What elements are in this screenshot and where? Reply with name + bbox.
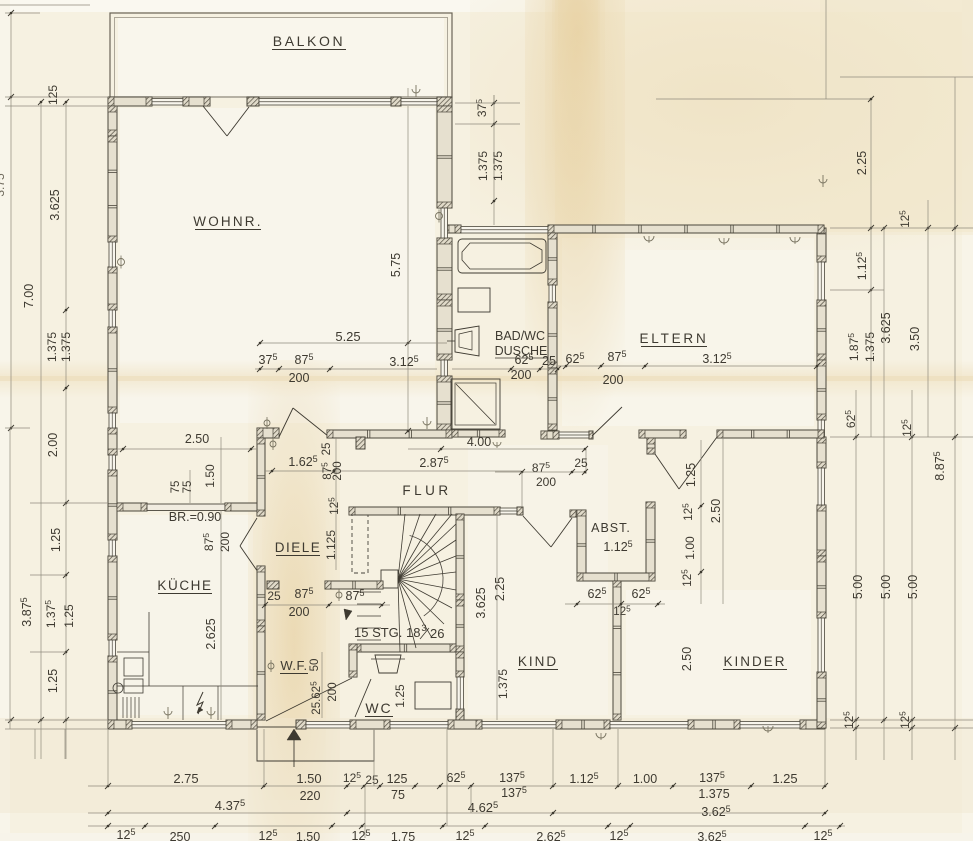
svg-text:4.00: 4.00 <box>467 435 491 449</box>
svg-text:25.625: 25.625 <box>309 681 323 715</box>
svg-text:50: 50 <box>309 659 321 672</box>
svg-text:25: 25 <box>574 456 588 470</box>
svg-text:5.25: 5.25 <box>335 329 360 344</box>
svg-text:200: 200 <box>536 475 556 489</box>
svg-text:DIELE: DIELE <box>275 540 322 555</box>
svg-text:200: 200 <box>603 373 624 387</box>
svg-text:200: 200 <box>218 532 232 552</box>
svg-text:1.375: 1.375 <box>59 332 73 362</box>
svg-text:2.25: 2.25 <box>855 151 869 175</box>
svg-text:2.00: 2.00 <box>46 433 60 457</box>
svg-text:1.50: 1.50 <box>296 830 320 841</box>
svg-text:25: 25 <box>365 773 379 787</box>
svg-text:1.00: 1.00 <box>633 772 657 786</box>
svg-text:3.625: 3.625 <box>879 312 893 343</box>
svg-text:1.25: 1.25 <box>49 528 63 552</box>
svg-text:25: 25 <box>542 354 556 368</box>
svg-text:BAD/WC: BAD/WC <box>495 329 545 343</box>
svg-text:75: 75 <box>182 481 194 494</box>
svg-text:26: 26 <box>430 626 444 641</box>
svg-text:ABST.: ABST. <box>591 521 631 535</box>
svg-text:1.50: 1.50 <box>203 464 217 488</box>
svg-text:200: 200 <box>332 461 344 480</box>
svg-text:1.375: 1.375 <box>496 669 510 699</box>
svg-text:BALKON: BALKON <box>273 33 345 49</box>
svg-text:200: 200 <box>289 605 310 619</box>
svg-text:1.25: 1.25 <box>46 669 60 693</box>
svg-text:1.375: 1.375 <box>491 151 505 181</box>
svg-text:1.125: 1.125 <box>324 530 338 560</box>
svg-text:2.50: 2.50 <box>709 499 723 523</box>
svg-text:7.00: 7.00 <box>22 284 36 308</box>
svg-text:2.25: 2.25 <box>493 577 507 601</box>
svg-text:250: 250 <box>170 830 191 841</box>
svg-text:KIND: KIND <box>518 654 558 669</box>
svg-text:5.00: 5.00 <box>879 575 893 599</box>
svg-text:2.50: 2.50 <box>185 432 209 446</box>
svg-text:BR.=0.90: BR.=0.90 <box>169 510 222 524</box>
svg-text:2.75: 2.75 <box>173 771 198 786</box>
svg-text:5.00: 5.00 <box>906 575 920 599</box>
svg-text:1.25: 1.25 <box>62 604 76 628</box>
svg-text:220: 220 <box>300 789 321 803</box>
svg-text:1.375: 1.375 <box>476 151 490 181</box>
svg-text:125: 125 <box>387 772 408 786</box>
svg-text:200: 200 <box>289 371 310 385</box>
svg-text:2.50: 2.50 <box>680 647 694 671</box>
svg-text:1.50: 1.50 <box>296 771 321 786</box>
svg-text:125: 125 <box>46 85 60 105</box>
svg-text:1.375: 1.375 <box>863 332 877 362</box>
svg-text:200: 200 <box>511 368 532 382</box>
svg-text:WOHNR.: WOHNR. <box>193 214 262 229</box>
svg-text:WC: WC <box>365 700 392 716</box>
svg-text:1.25: 1.25 <box>772 771 797 786</box>
svg-text:3.75: 3.75 <box>0 173 7 197</box>
svg-text:25: 25 <box>321 443 333 456</box>
svg-text:3.625: 3.625 <box>48 189 62 220</box>
svg-text:1.75: 1.75 <box>391 830 415 841</box>
svg-text:2.625: 2.625 <box>204 618 218 649</box>
svg-text:5.75: 5.75 <box>389 253 403 277</box>
svg-text:200: 200 <box>327 682 339 701</box>
svg-text:75: 75 <box>391 788 405 802</box>
svg-text:KÜCHE: KÜCHE <box>157 578 212 593</box>
svg-text:W.F.: W.F. <box>280 658 307 673</box>
svg-text:1.25: 1.25 <box>393 684 407 708</box>
svg-text:1.375: 1.375 <box>698 787 729 801</box>
svg-text:1.00: 1.00 <box>683 536 697 560</box>
svg-text:ELTERN: ELTERN <box>639 331 708 346</box>
svg-text:KINDER: KINDER <box>723 654 786 669</box>
svg-text:3.625: 3.625 <box>474 587 488 618</box>
svg-text:75: 75 <box>170 481 182 494</box>
svg-text:5.00: 5.00 <box>851 575 865 599</box>
svg-text:1.25: 1.25 <box>684 463 698 487</box>
svg-text:25: 25 <box>267 589 281 603</box>
svg-text:FLUR: FLUR <box>402 483 451 498</box>
svg-text:15 STG. 18: 15 STG. 18 <box>354 625 420 640</box>
svg-text:3.50: 3.50 <box>908 327 922 351</box>
svg-text:1.375: 1.375 <box>45 332 59 362</box>
